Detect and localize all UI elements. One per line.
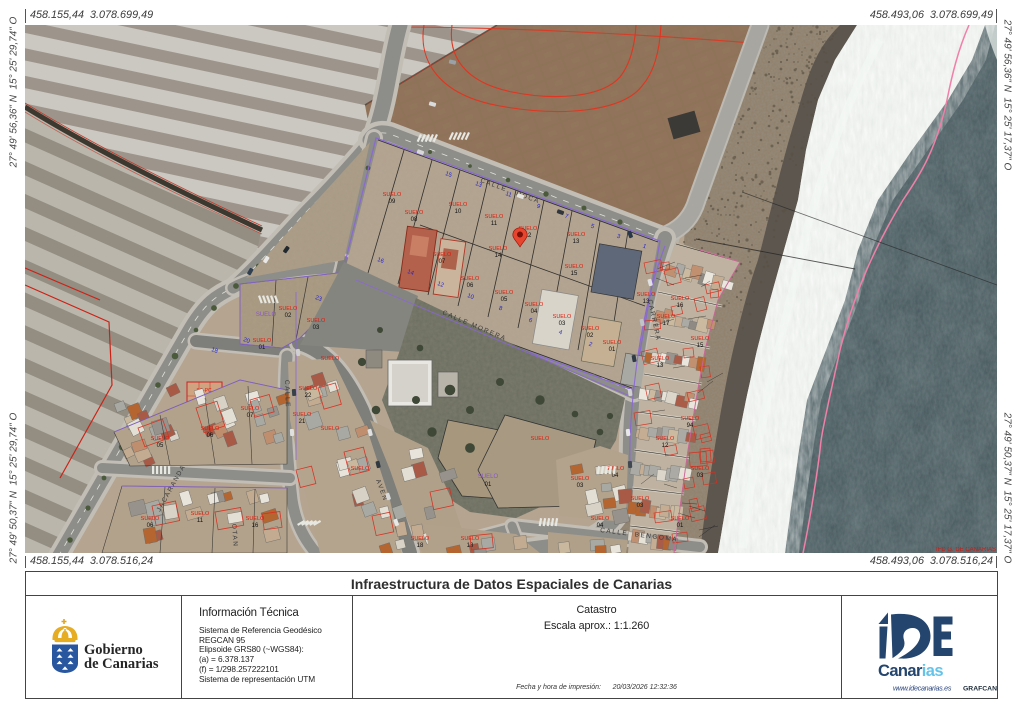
svg-text:01: 01	[609, 347, 616, 353]
svg-text:04: 04	[531, 309, 538, 315]
svg-text:SUELO: SUELO	[591, 516, 610, 522]
svg-text:07: 07	[247, 413, 254, 419]
svg-text:17: 17	[663, 321, 670, 327]
svg-text:SUELO: SUELO	[433, 252, 452, 258]
svg-text:SUELO: SUELO	[485, 214, 504, 220]
svg-text:05: 05	[501, 297, 508, 303]
svg-text:11: 11	[197, 518, 204, 524]
svg-text:12: 12	[662, 443, 669, 449]
svg-text:SUELO: SUELO	[656, 436, 675, 442]
svg-text:02: 02	[285, 313, 292, 319]
svg-text:07: 07	[439, 259, 446, 265]
svg-text:SUELO: SUELO	[307, 318, 326, 324]
svg-text:SUELO: SUELO	[405, 210, 424, 216]
svg-text:SUELO: SUELO	[461, 276, 480, 282]
svg-text:SUELO: SUELO	[691, 336, 710, 342]
svg-text:SUELO: SUELO	[691, 466, 710, 472]
svg-text:GRAFCAN: GRAFCAN	[963, 686, 997, 693]
svg-text:SUELO: SUELO	[637, 292, 656, 298]
svg-text:15: 15	[697, 343, 704, 349]
svg-text:03: 03	[577, 483, 584, 489]
svg-text:SUELO: SUELO	[279, 306, 298, 312]
svg-text:SUELO: SUELO	[631, 496, 650, 502]
svg-text:14: 14	[495, 253, 502, 259]
svg-text:03: 03	[637, 503, 644, 509]
svg-text:de Canarias: de Canarias	[84, 656, 159, 672]
svg-text:21: 21	[299, 419, 306, 425]
svg-text:13: 13	[467, 543, 474, 549]
svg-text:01: 01	[677, 523, 684, 529]
svg-text:SUELO: SUELO	[293, 412, 312, 418]
svg-text:05: 05	[157, 443, 164, 449]
svg-text:SUELO: SUELO	[671, 516, 690, 522]
svg-text:SUELO: SUELO	[571, 476, 590, 482]
svg-text:03: 03	[697, 473, 704, 479]
svg-text:SUELO: SUELO	[489, 246, 508, 252]
svg-text:09: 09	[389, 199, 396, 205]
svg-text:01: 01	[485, 482, 492, 488]
svg-text:www.idecanarias.es: www.idecanarias.es	[893, 684, 952, 693]
svg-text:SUELO: SUELO	[657, 314, 676, 320]
svg-text:SUELO: SUELO	[567, 232, 586, 238]
svg-text:03: 03	[313, 325, 320, 331]
svg-text:IFD G. DE CANARIAS: IFD G. DE CANARIAS	[936, 547, 996, 553]
svg-text:15: 15	[571, 271, 578, 277]
svg-text:SUELO: SUELO	[449, 202, 468, 208]
svg-text:06: 06	[147, 523, 154, 529]
svg-text:CALLE: CALLE	[283, 380, 291, 408]
svg-text:03: 03	[559, 321, 566, 327]
svg-text:SUELO: SUELO	[299, 386, 318, 392]
svg-text:SUELO: SUELO	[525, 302, 544, 308]
svg-text:SUELO: SUELO	[253, 338, 272, 344]
svg-text:SUELO: SUELO	[411, 536, 430, 542]
svg-text:SUELO: SUELO	[321, 356, 340, 362]
svg-text:06: 06	[467, 283, 474, 289]
svg-text:SUELO: SUELO	[531, 436, 550, 442]
svg-text:SUELO: SUELO	[256, 312, 277, 318]
svg-text:22: 22	[305, 393, 312, 399]
svg-text:SUELO: SUELO	[681, 416, 700, 422]
svg-text:10: 10	[455, 209, 462, 215]
svg-text:08: 08	[411, 217, 418, 223]
svg-text:16: 16	[252, 523, 259, 529]
svg-text:13: 13	[573, 239, 580, 245]
svg-text:SUELO: SUELO	[383, 192, 402, 198]
svg-text:16: 16	[677, 303, 684, 309]
svg-text:SUELO: SUELO	[581, 326, 600, 332]
svg-text:SUELO: SUELO	[478, 474, 499, 480]
svg-text:SUELO: SUELO	[495, 290, 514, 296]
svg-text:SUELO: SUELO	[321, 426, 340, 432]
svg-text:SUELO: SUELO	[671, 296, 690, 302]
svg-text:18: 18	[417, 543, 424, 549]
svg-text:06: 06	[207, 433, 214, 439]
svg-text:SUELO: SUELO	[141, 516, 160, 522]
svg-text:13: 13	[657, 363, 664, 369]
svg-text:Canarias: Canarias	[878, 662, 943, 680]
svg-text:01: 01	[259, 345, 266, 351]
svg-text:SUELO: SUELO	[603, 340, 622, 346]
svg-text:SUELO: SUELO	[651, 356, 670, 362]
svg-text:SUELO: SUELO	[191, 511, 210, 517]
svg-text:02: 02	[587, 333, 594, 339]
svg-text:SUELO: SUELO	[241, 406, 260, 412]
svg-text:SUELO: SUELO	[565, 264, 584, 270]
svg-text:SUELO: SUELO	[553, 314, 572, 320]
svg-text:11: 11	[491, 221, 498, 227]
svg-text:94: 94	[687, 423, 694, 429]
